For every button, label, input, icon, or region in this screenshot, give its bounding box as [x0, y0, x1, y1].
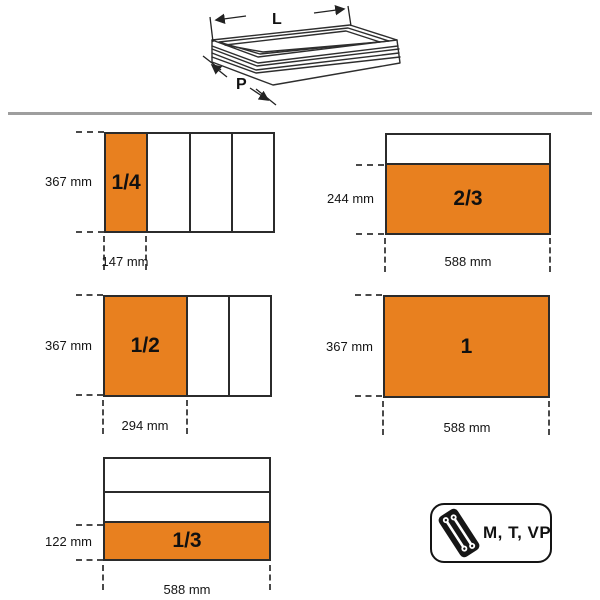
- half-filled-cell: 1/2: [105, 297, 188, 395]
- layout-full: 1: [383, 295, 550, 398]
- badge-label: M, T, VP: [483, 523, 551, 543]
- dim-line: [355, 395, 382, 397]
- dim-line: [76, 294, 103, 296]
- compatibility-badge: M, T, VP: [430, 503, 552, 563]
- height-dimension-label: 367 mm: [30, 338, 92, 354]
- drawer-sketch: L P: [180, 5, 420, 105]
- fraction-label: 1/2: [131, 334, 160, 358]
- dim-line: [549, 238, 551, 272]
- width-dimension-label: 588 mm: [418, 254, 518, 270]
- dim-line: [76, 231, 104, 233]
- dim-line: [356, 164, 384, 166]
- layout-half: 1/2: [103, 295, 272, 397]
- dim-line: [548, 401, 550, 435]
- dim-line: [355, 294, 382, 296]
- width-dimension-label: 588 mm: [137, 582, 237, 598]
- height-dimension-label: 367 mm: [313, 339, 373, 355]
- dim-line: [269, 565, 271, 590]
- height-dimension-label: 244 mm: [314, 191, 374, 207]
- dim-line: [102, 565, 104, 590]
- width-dimension-label: 294 mm: [105, 418, 185, 434]
- layout-third: 1/3: [103, 457, 271, 561]
- fraction-label: 1/4: [112, 171, 141, 195]
- dim-line: [384, 238, 386, 272]
- dim-line: [76, 131, 104, 133]
- dim-line: [76, 394, 103, 396]
- layout-quarter: 1/4: [104, 132, 275, 233]
- dim-line: [102, 400, 104, 434]
- quarter-filled-cell: 1/4: [106, 134, 148, 231]
- depth-label: P: [236, 76, 247, 93]
- two-thirds-filled-cell: 2/3: [387, 165, 549, 233]
- height-dimension-label: 367 mm: [30, 174, 92, 190]
- length-label: L: [272, 11, 282, 28]
- dim-line: [382, 401, 384, 435]
- drawer-configurations-diagram: L P 1/4 367 mm 147 mm 2/3 244 mm 588 mm: [0, 0, 600, 600]
- third-filled-cell: 1/3: [105, 523, 269, 559]
- fraction-label: 1: [461, 335, 473, 359]
- layout-two-thirds: 2/3: [385, 133, 551, 235]
- fraction-label: 1/3: [172, 529, 201, 553]
- width-dimension-label: 147 mm: [85, 254, 165, 270]
- dim-line: [76, 524, 103, 526]
- width-dimension-label: 588 mm: [417, 420, 517, 436]
- section-separator: [8, 112, 592, 115]
- height-dimension-label: 122 mm: [30, 534, 92, 550]
- tray-wrenches-icon: [437, 508, 481, 558]
- dim-line: [356, 233, 384, 235]
- dim-line: [186, 400, 188, 434]
- dim-line: [76, 559, 103, 561]
- full-filled-cell: 1: [385, 297, 548, 396]
- fraction-label: 2/3: [453, 187, 482, 211]
